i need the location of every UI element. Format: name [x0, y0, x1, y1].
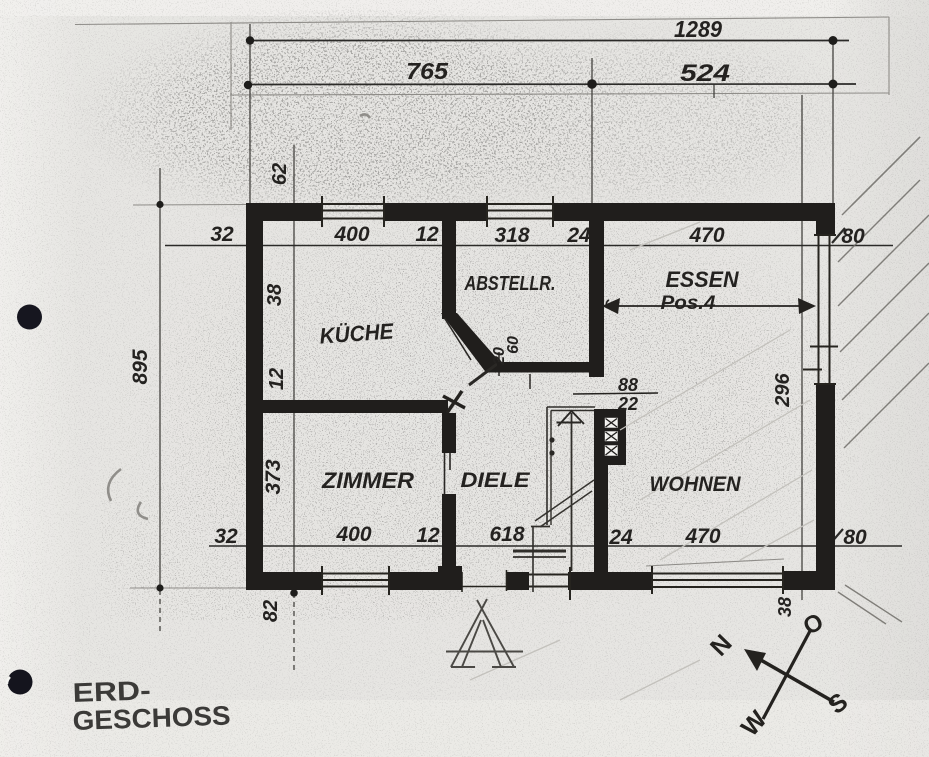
svg-text:38: 38	[775, 597, 795, 617]
svg-text:82: 82	[260, 600, 282, 622]
svg-text:373: 373	[262, 459, 285, 494]
svg-text:895: 895	[129, 349, 152, 384]
svg-text:88: 88	[618, 375, 638, 395]
svg-text:62: 62	[269, 163, 291, 185]
svg-text:400: 400	[333, 223, 369, 246]
svg-text:KÜCHE: KÜCHE	[319, 318, 396, 348]
svg-text:38: 38	[264, 283, 286, 306]
svg-text:618: 618	[489, 523, 524, 546]
svg-text:400: 400	[335, 523, 371, 546]
svg-text:12: 12	[415, 223, 439, 246]
svg-text:32: 32	[210, 223, 234, 246]
svg-text:470: 470	[688, 224, 724, 247]
svg-text:80: 80	[843, 526, 867, 549]
svg-text:ZIMMER: ZIMMER	[321, 468, 414, 493]
svg-text:12: 12	[266, 368, 288, 390]
svg-text:ESSEN: ESSEN	[666, 267, 740, 292]
svg-text:32: 32	[214, 525, 238, 548]
svg-text:296: 296	[772, 372, 794, 407]
svg-text:80: 80	[841, 225, 865, 248]
svg-text:12: 12	[416, 524, 440, 547]
svg-text:470: 470	[684, 525, 720, 548]
svg-text:318: 318	[494, 224, 529, 247]
svg-text:ABSTELLR.: ABSTELLR.	[464, 273, 556, 295]
svg-text:524: 524	[680, 60, 730, 87]
svg-text:24: 24	[608, 526, 633, 549]
svg-text:1289: 1289	[674, 16, 722, 42]
svg-text:DIELE: DIELE	[461, 469, 531, 492]
svg-text:WOHNEN: WOHNEN	[650, 473, 742, 496]
svg-text:Pos.4: Pos.4	[661, 293, 716, 314]
svg-text:765: 765	[406, 58, 449, 84]
svg-text:20: 20	[491, 347, 508, 366]
svg-text:GESCHOSS: GESCHOSS	[72, 701, 231, 736]
svg-text:24: 24	[566, 224, 591, 247]
svg-text:22: 22	[617, 394, 638, 414]
